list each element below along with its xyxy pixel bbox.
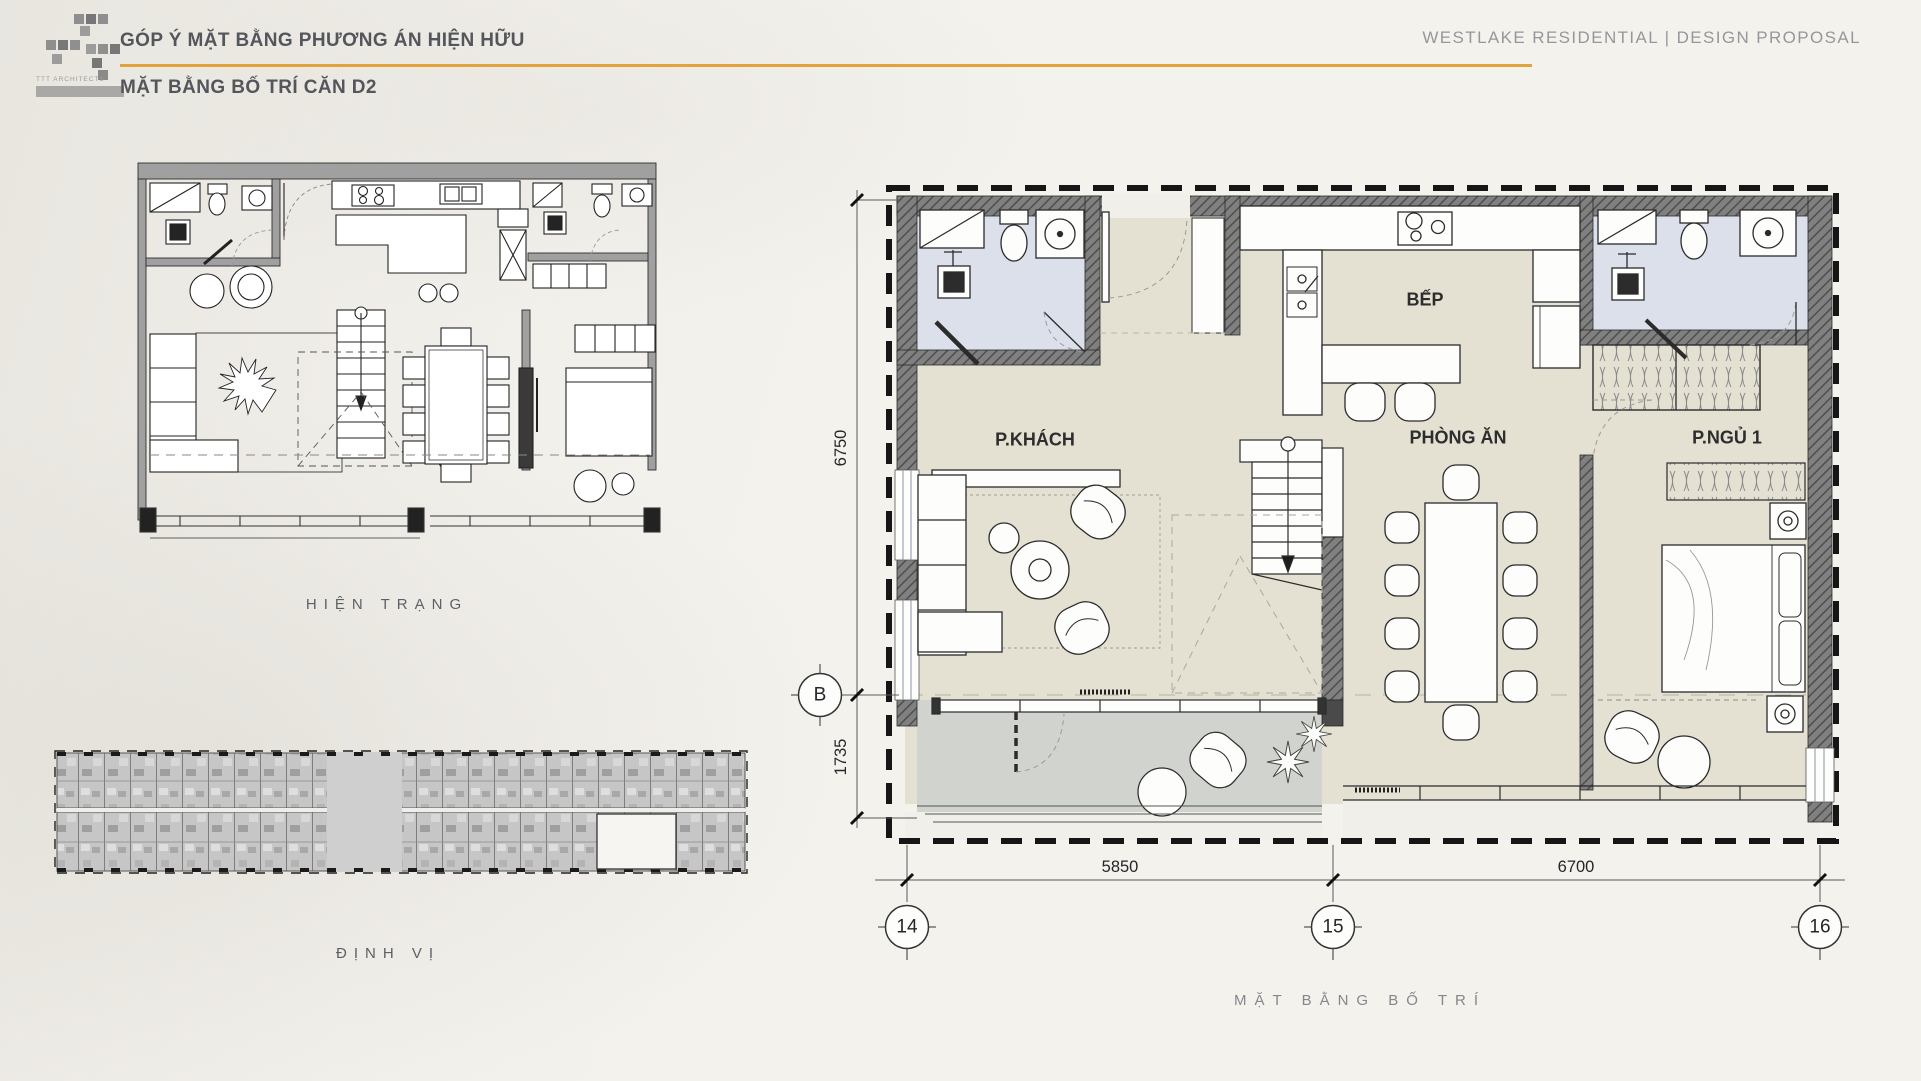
accent-divider [120,64,1532,67]
grid-label-15: 15 [1322,917,1343,938]
room-label-bedroom: P.NGỦ 1 [1692,428,1762,449]
dim-6700: 6700 [1558,858,1595,876]
existing-plan-caption: HIỆN TRẠNG [306,596,468,613]
page-subtitle: MẶT BẰNG BỐ TRÍ CĂN D2 [120,77,377,99]
dim-1735: 1735 [832,739,850,776]
existing-bath1 [150,183,272,266]
existing-dining [403,328,509,482]
existing-plan-drawing [120,140,680,610]
logo-brand-bar [36,86,124,97]
slide: TTT ARCHITECTS GÓP Ý MẶT BẰNG PHƯƠNG ÁN … [0,0,1921,1081]
layout-plan-caption: MẶT BẰNG BỐ TRÍ [1234,992,1486,1009]
existing-kitchen [332,181,528,302]
grid-label-14: 14 [896,917,918,938]
dimension-bottom [875,845,1845,902]
key-plan-highlighted-unit [597,814,676,869]
grid-bubbles-bottom [878,906,1849,961]
existing-bedroom [519,325,655,502]
existing-entry-door [284,183,332,240]
key-plan-caption: ĐỊNH VỊ [336,945,440,962]
logo-brand-text: TTT ARCHITECTS [36,76,126,83]
dim-6750: 6750 [832,430,850,467]
room-label-dining: PHÒNG ĂN [1409,428,1506,449]
dim-5850: 5850 [1102,858,1139,876]
grid-label-b: B [814,685,827,706]
existing-stairs [298,307,412,466]
key-plan-drawing [50,748,760,883]
room-label-kitchen: BẾP [1406,290,1443,311]
page-title: GÓP Ý MẶT BẰNG PHƯƠNG ÁN HIỆN HỮU [120,30,525,52]
project-title: WESTLAKE RESIDENTIAL | DESIGN PROPOSAL [1422,28,1861,48]
room-label-living: P.KHÁCH [995,430,1075,451]
grid-label-16: 16 [1809,917,1830,938]
existing-bath2 [533,183,652,288]
layout-plan-drawing: 6750 1735 B 5850 6700 14 [770,150,1921,1081]
